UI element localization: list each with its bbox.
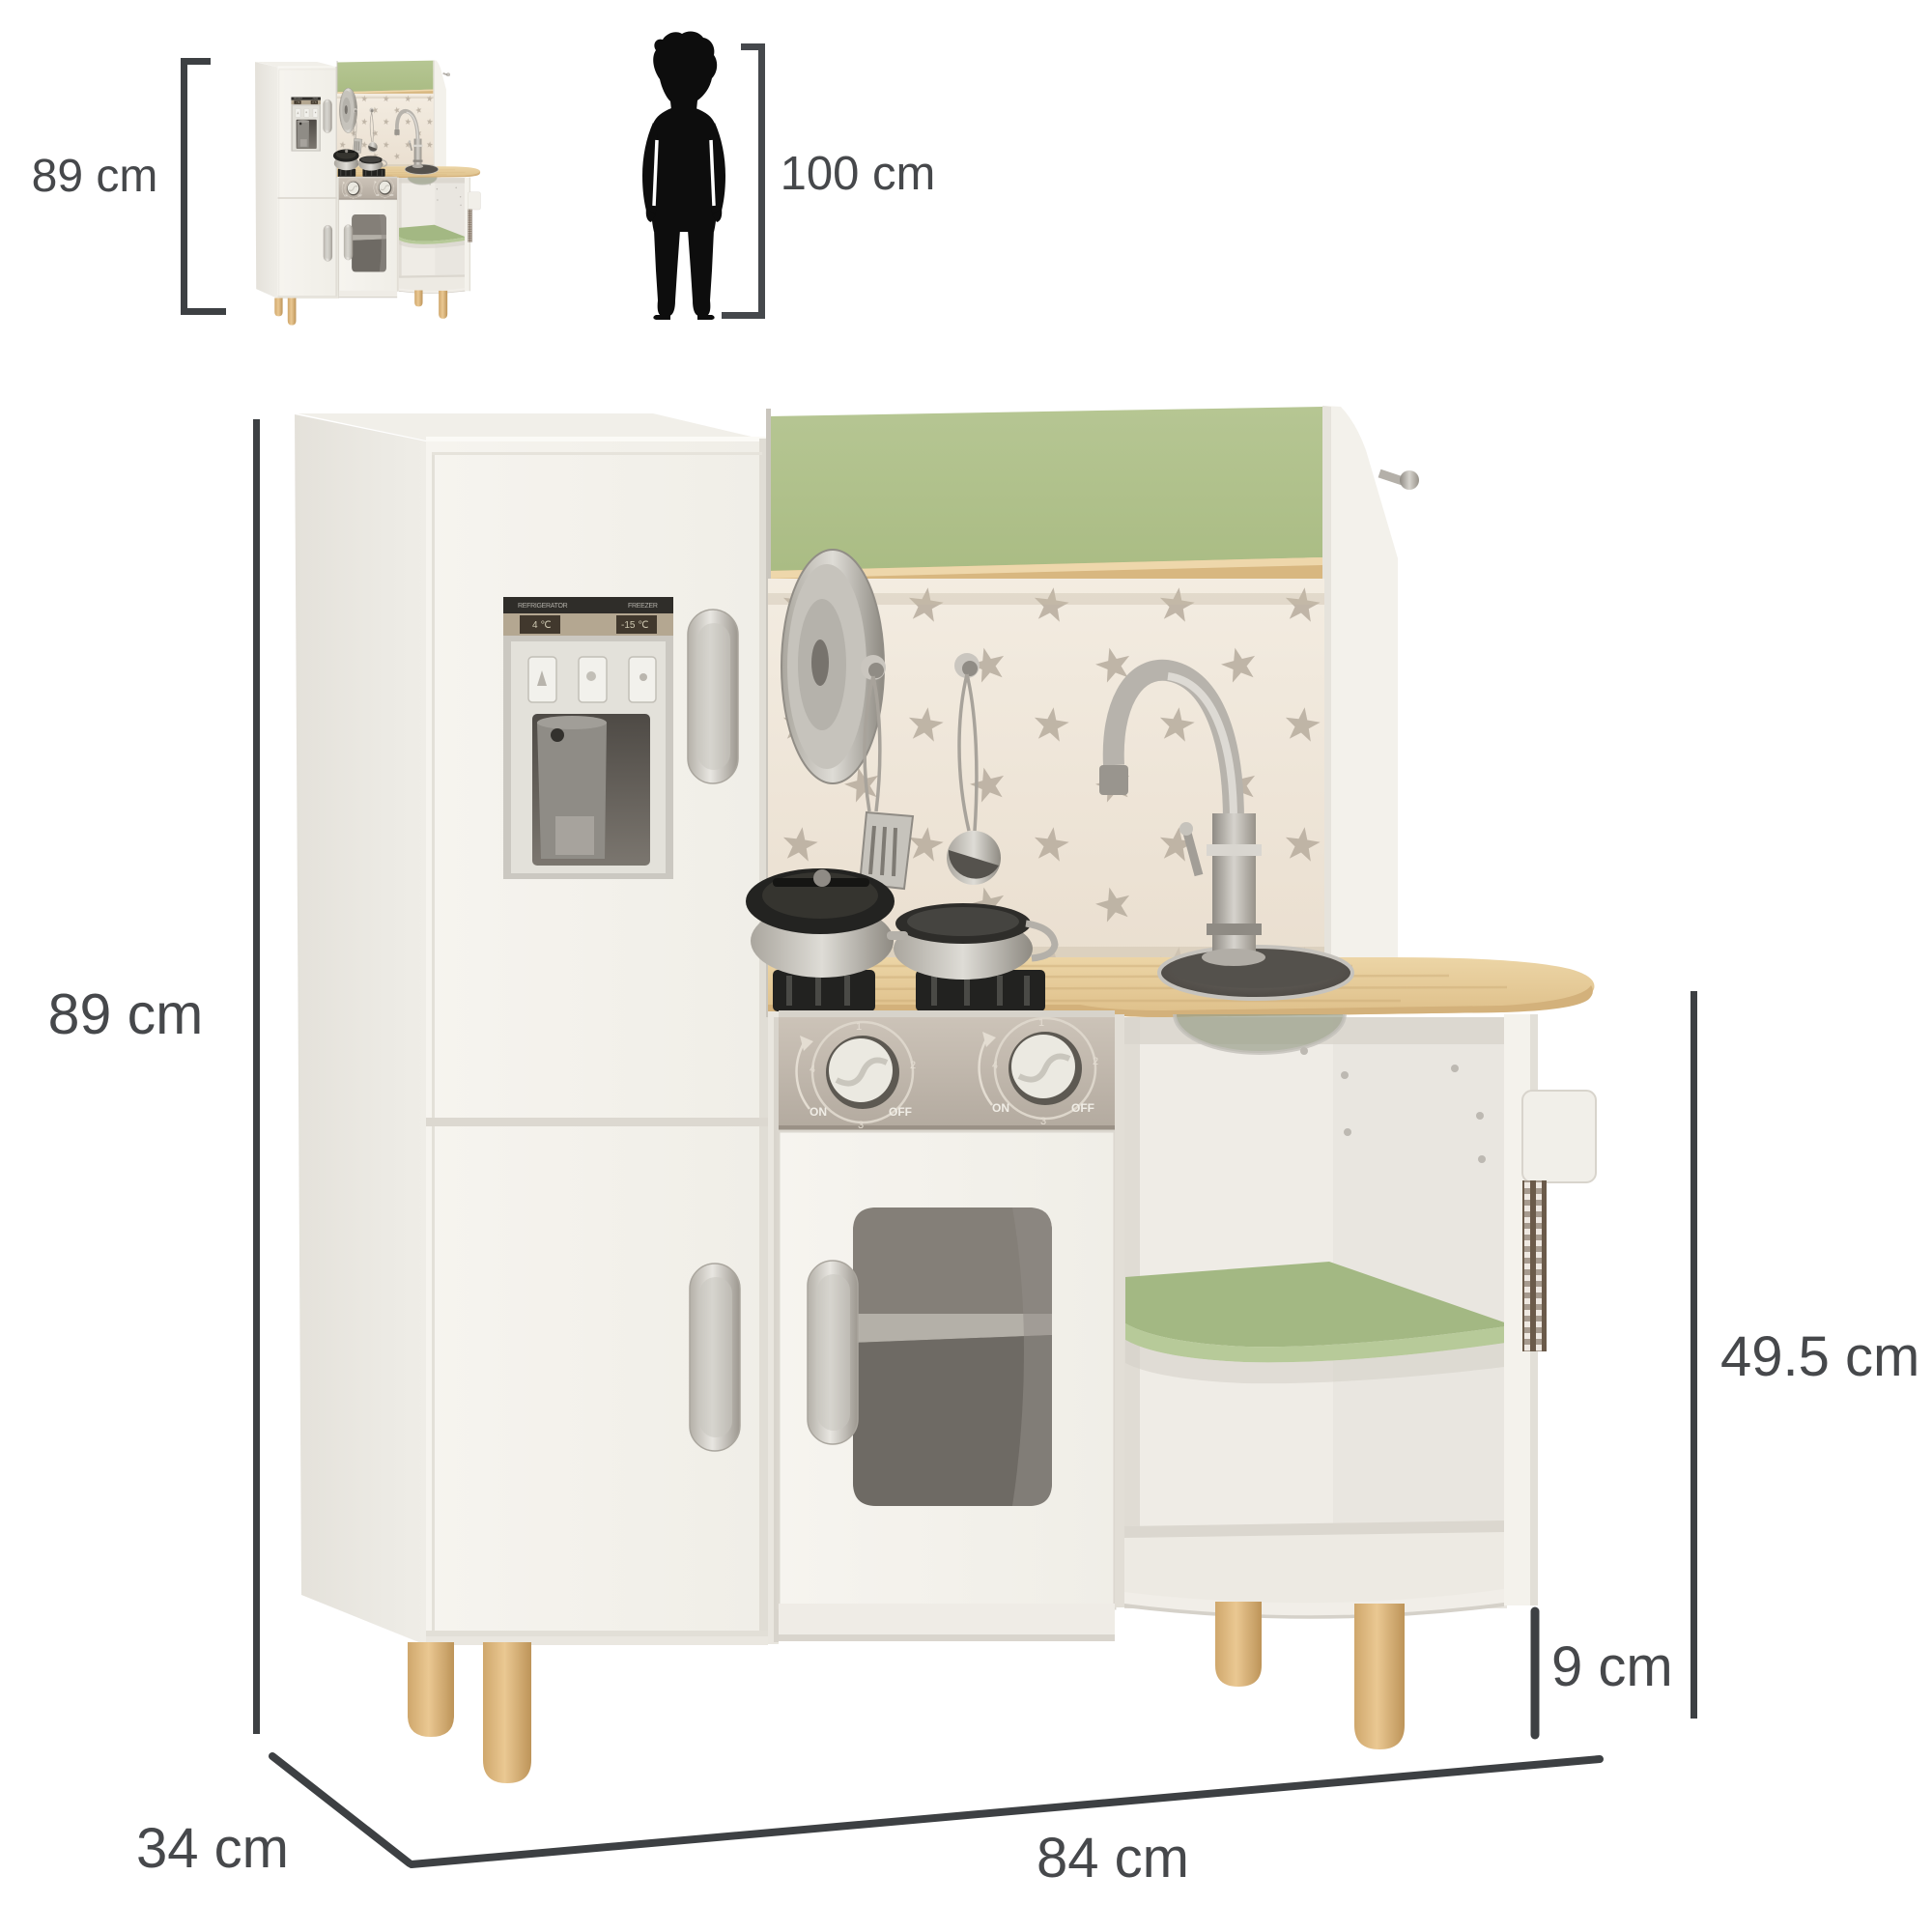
svg-text:100 cm: 100 cm <box>781 148 936 200</box>
svg-text:89 cm: 89 cm <box>32 151 158 202</box>
svg-text:34 cm: 34 cm <box>136 1817 289 1880</box>
svg-text:89 cm: 89 cm <box>48 982 204 1046</box>
svg-text:9 cm: 9 cm <box>1551 1635 1673 1698</box>
svg-text:49.5 cm: 49.5 cm <box>1720 1325 1919 1388</box>
svg-text:84 cm: 84 cm <box>1037 1827 1189 1889</box>
